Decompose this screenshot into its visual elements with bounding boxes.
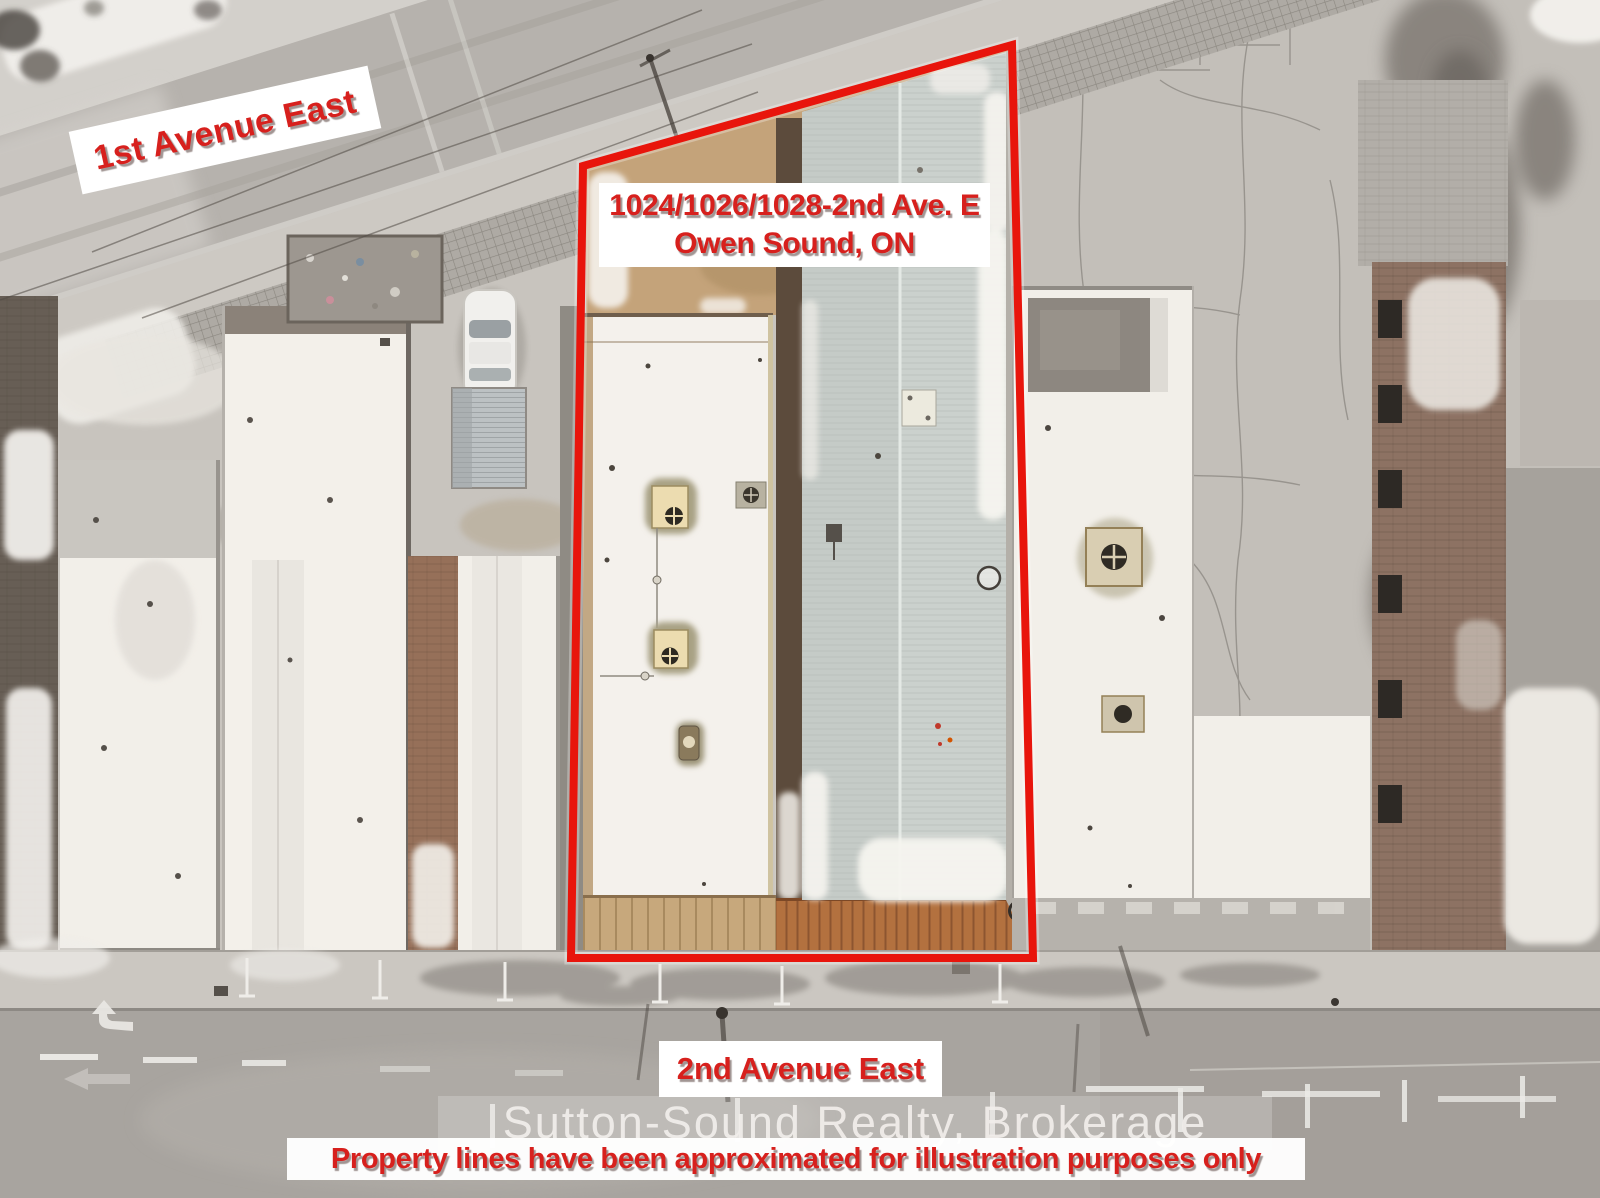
rooftop-hvac-icon xyxy=(654,630,688,668)
rooftop-patio xyxy=(288,236,442,322)
orange-canopy-roof xyxy=(776,900,1032,955)
rooftop-unit-icon xyxy=(902,390,936,426)
edge-hvac-icon xyxy=(736,482,766,508)
address-line1: 1024/1026/1028-2nd Ave. E xyxy=(609,187,980,225)
roof-ring-marker-icon xyxy=(978,567,1000,589)
address-label: 1024/1026/1028-2nd Ave. E Owen Sound, ON xyxy=(599,183,990,267)
subject-building-right-gable xyxy=(802,52,1010,902)
rooftop-hvac-icon xyxy=(1102,696,1144,732)
street-label-2nd-avenue-text: 2nd Avenue East xyxy=(677,1051,925,1087)
street-label-2nd-avenue: 2nd Avenue East xyxy=(659,1041,942,1097)
subject-building-left xyxy=(583,313,773,900)
address-line2: Owen Sound, ON xyxy=(674,225,915,263)
aerial-photo-stage: 1st Avenue East 1024/1026/1028-2nd Ave. … xyxy=(0,0,1600,1198)
rooftop-vent-icon xyxy=(676,722,704,766)
disclaimer-text: Property lines have been approximated fo… xyxy=(331,1143,1261,1176)
rooftop-hvac-icon xyxy=(652,486,688,528)
rooftop-hvac-icon xyxy=(1086,528,1142,586)
wood-deck xyxy=(583,897,776,955)
gray-shed-roof xyxy=(452,388,526,488)
disclaimer-label: Property lines have been approximated fo… xyxy=(287,1138,1305,1180)
snow-roof-building xyxy=(222,306,410,952)
aerial-photo-scene xyxy=(0,0,1600,1198)
